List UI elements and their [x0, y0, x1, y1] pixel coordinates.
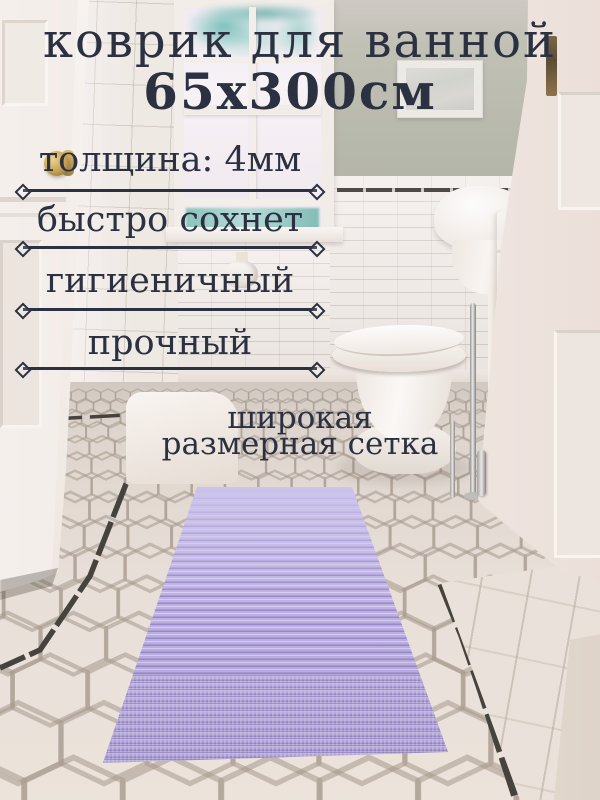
product-title: коврик для ванной	[0, 16, 600, 66]
feature-underline	[23, 189, 317, 192]
feature-label-thickness: толщина: 4мм	[0, 142, 340, 179]
feature-label-dries-fast: быстро сохнет	[0, 202, 340, 239]
feature-underline	[23, 367, 317, 370]
feature-underline	[23, 308, 317, 311]
feature-label-hygienic: гигиеничный	[0, 263, 340, 300]
mat-ribbed-texture	[100, 675, 448, 763]
note-wide-range-line2: размерная сетка	[0, 428, 600, 461]
feature-label-durable: прочный	[0, 325, 340, 362]
product-size: 65х300см	[0, 66, 580, 119]
product-photo-bathroom: коврик для ванной 65х300см толщина: 4мм …	[0, 0, 600, 800]
chrome-supply-pipe	[470, 303, 476, 497]
feature-underline	[23, 246, 317, 249]
